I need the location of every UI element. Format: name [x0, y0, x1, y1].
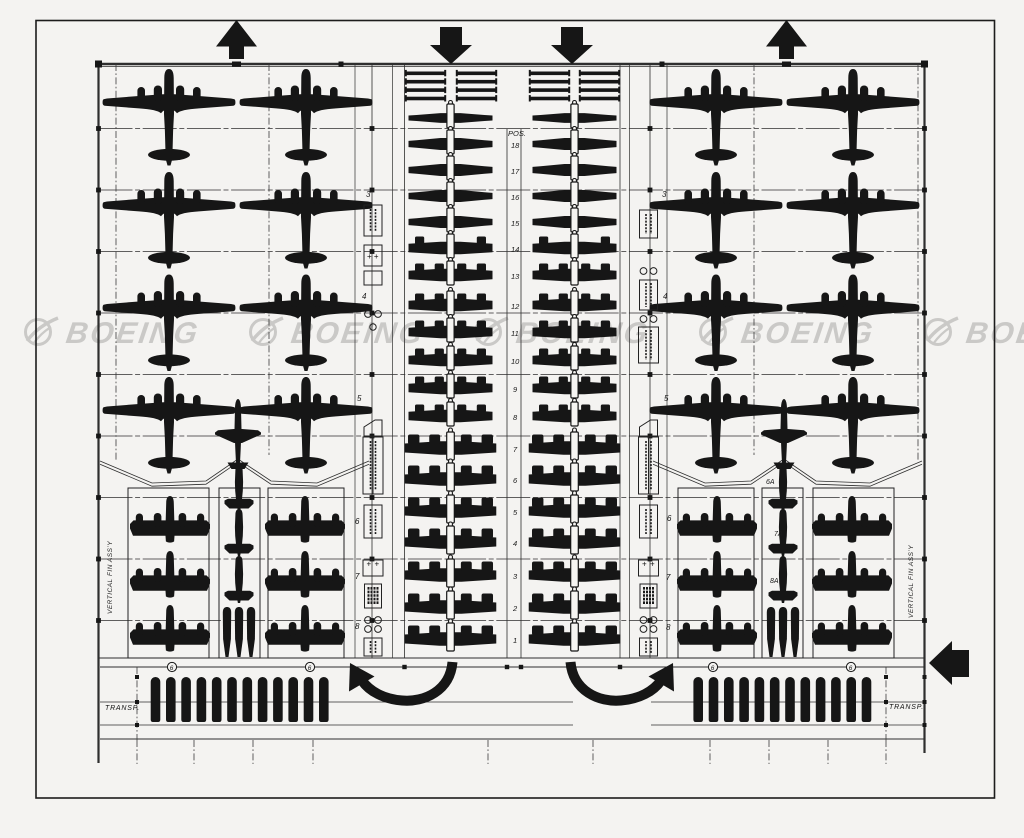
svg-text:+ +: + + [367, 252, 379, 261]
svg-text:6: 6 [308, 665, 312, 672]
svg-text:BOEING: BOEING [64, 317, 202, 350]
svg-text:4: 4 [663, 292, 668, 301]
svg-text:7A: 7A [774, 531, 783, 538]
svg-text:3: 3 [662, 190, 667, 199]
svg-text:+: + [642, 560, 647, 569]
svg-text:10: 10 [511, 357, 520, 366]
svg-text:8: 8 [666, 623, 671, 632]
svg-text:3: 3 [366, 190, 371, 199]
svg-text:11: 11 [511, 329, 519, 338]
svg-text:6: 6 [170, 665, 174, 672]
svg-text:13: 13 [511, 272, 520, 281]
svg-text:16: 16 [511, 193, 520, 202]
svg-text:7: 7 [355, 572, 360, 581]
svg-text:+: + [367, 560, 372, 569]
svg-text:+: + [375, 560, 380, 569]
svg-text:12: 12 [511, 302, 520, 311]
svg-text:8A: 8A [770, 578, 779, 585]
svg-text:TRANSP.: TRANSP. [889, 704, 924, 711]
svg-text:5: 5 [664, 394, 669, 403]
svg-text:4: 4 [362, 292, 367, 301]
svg-text:5: 5 [357, 394, 362, 403]
svg-text:17: 17 [511, 167, 520, 176]
svg-text:VERTICAL FIN ASS’Y: VERTICAL FIN ASS’Y [107, 541, 114, 614]
svg-text:1: 1 [513, 636, 517, 645]
svg-text:2: 2 [512, 604, 518, 613]
svg-text:15: 15 [511, 219, 520, 228]
svg-text:VERTICAL FIN ASS’Y: VERTICAL FIN ASS’Y [908, 545, 915, 618]
svg-text:6: 6 [355, 517, 360, 526]
svg-text:4: 4 [513, 539, 517, 548]
svg-text:7: 7 [666, 573, 671, 582]
svg-text:6: 6 [849, 665, 853, 672]
svg-text:14: 14 [511, 245, 519, 254]
svg-text:8: 8 [355, 622, 360, 631]
svg-text:6: 6 [667, 514, 672, 523]
svg-text:18: 18 [511, 141, 520, 150]
svg-text:POS.: POS. [508, 129, 526, 138]
svg-text:+: + [650, 560, 655, 569]
svg-text:6: 6 [711, 665, 715, 672]
svg-text:TRANSP.: TRANSP. [105, 705, 140, 712]
svg-text:6A: 6A [766, 479, 775, 486]
